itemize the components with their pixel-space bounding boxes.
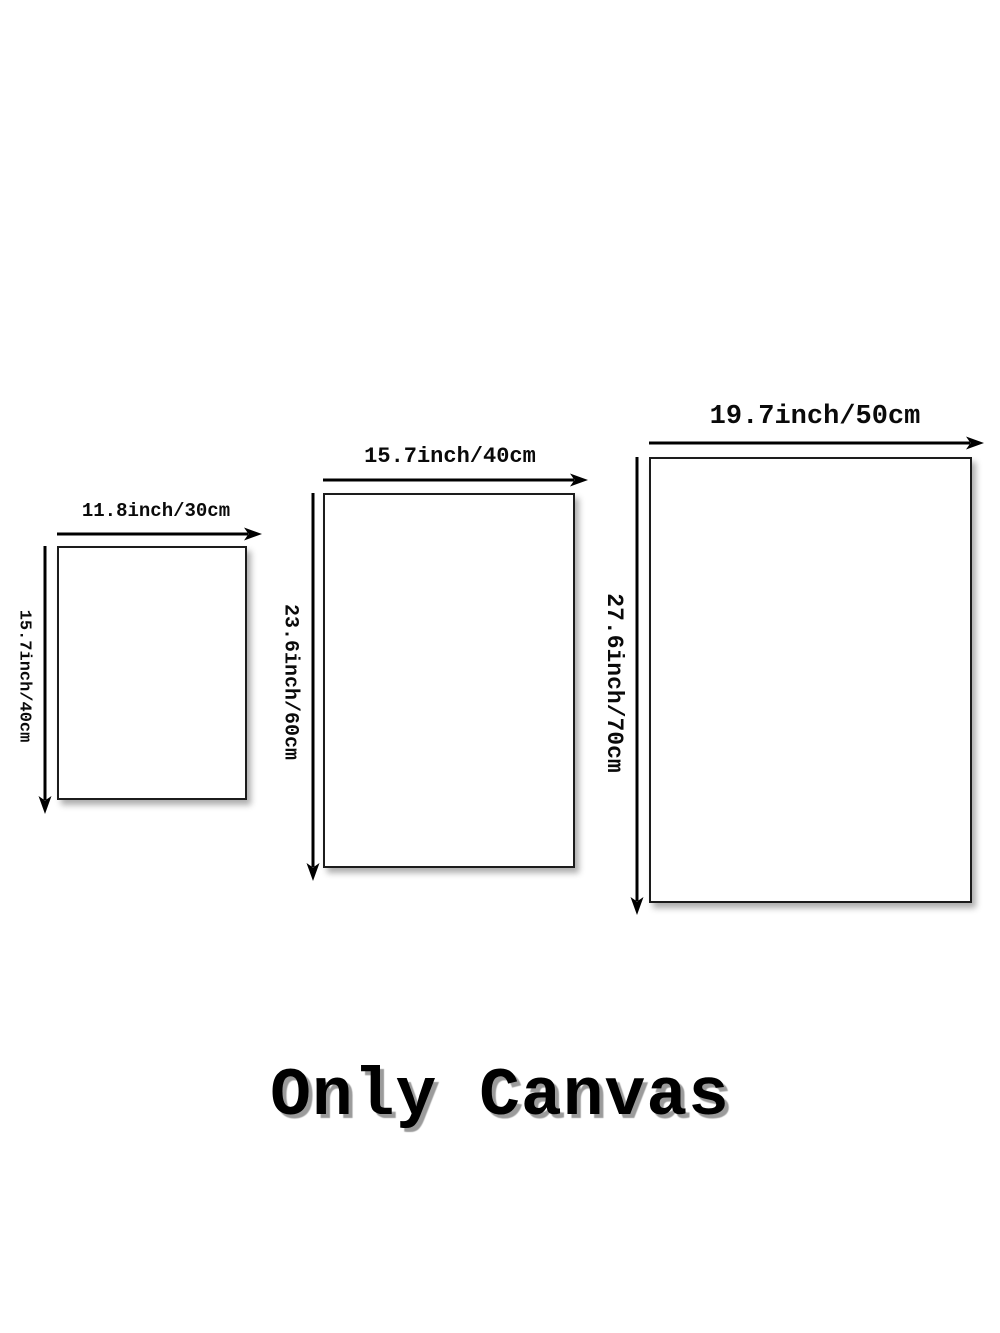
height-arrow-icon <box>37 546 53 814</box>
canvas-preview-medium <box>323 493 575 868</box>
width-dimension-label: 11.8inch/30cm <box>36 500 276 522</box>
width-arrow-icon <box>649 434 984 452</box>
canvas-preview-small <box>57 546 247 800</box>
height-dimension-label: 23.6inch/60cm <box>279 604 302 760</box>
height-arrow-icon <box>629 457 645 915</box>
width-arrow-icon <box>57 525 262 543</box>
canvas-preview-large <box>649 457 972 903</box>
width-dimension-label: 19.7inch/50cm <box>690 402 940 432</box>
canvas-size-chart: 11.8inch/30cm 15.7inch/40cm 15.7inch/40c… <box>0 0 1000 1333</box>
height-dimension-label: 27.6inch/70cm <box>601 593 627 772</box>
height-arrow-icon <box>305 493 321 881</box>
width-arrow-icon <box>323 471 588 489</box>
only-canvas-caption: Only Canvas <box>0 1058 1000 1135</box>
width-dimension-label: 15.7inch/40cm <box>330 444 570 469</box>
height-dimension-label: 15.7inch/40cm <box>15 610 34 743</box>
